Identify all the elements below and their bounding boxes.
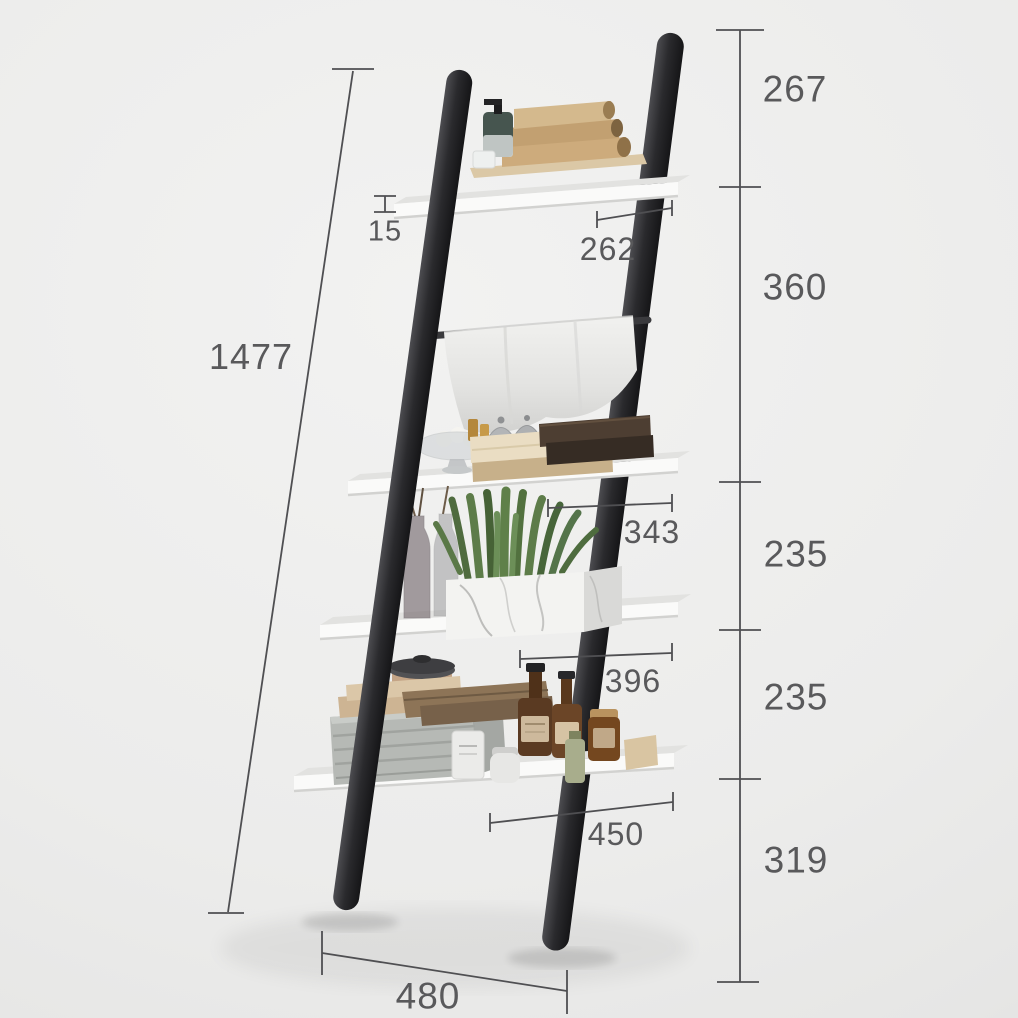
succulent-plant <box>436 491 596 580</box>
product-dimension-diagram: 267 360 235 235 319 1477 15 262 343 396 … <box>0 0 1018 1018</box>
label-segment-360: 360 <box>763 269 828 306</box>
dim-line-right-heights <box>716 30 764 982</box>
label-base-width: 480 <box>396 978 461 1015</box>
dim-line-shelf-thickness <box>374 196 396 212</box>
label-segment-235-upper: 235 <box>764 536 829 573</box>
label-segment-319: 319 <box>764 842 829 879</box>
label-depth-450: 450 <box>588 818 644 850</box>
hanging-towel <box>444 316 637 433</box>
soap-dispenser <box>483 99 513 157</box>
label-shelf-thickness: 15 <box>368 218 402 247</box>
marble-planter <box>446 566 622 640</box>
small-cup <box>473 151 495 168</box>
label-total-height: 1477 <box>209 339 293 375</box>
folded-towel-stack <box>502 101 631 167</box>
label-segment-267: 267 <box>763 71 828 108</box>
label-depth-396: 396 <box>605 665 661 697</box>
label-depth-262: 262 <box>580 233 636 265</box>
ladder-shelf-illustration <box>0 0 1018 1018</box>
label-depth-343: 343 <box>624 516 680 548</box>
label-segment-235-lower: 235 <box>764 679 829 716</box>
shelf-1-items <box>470 99 647 178</box>
